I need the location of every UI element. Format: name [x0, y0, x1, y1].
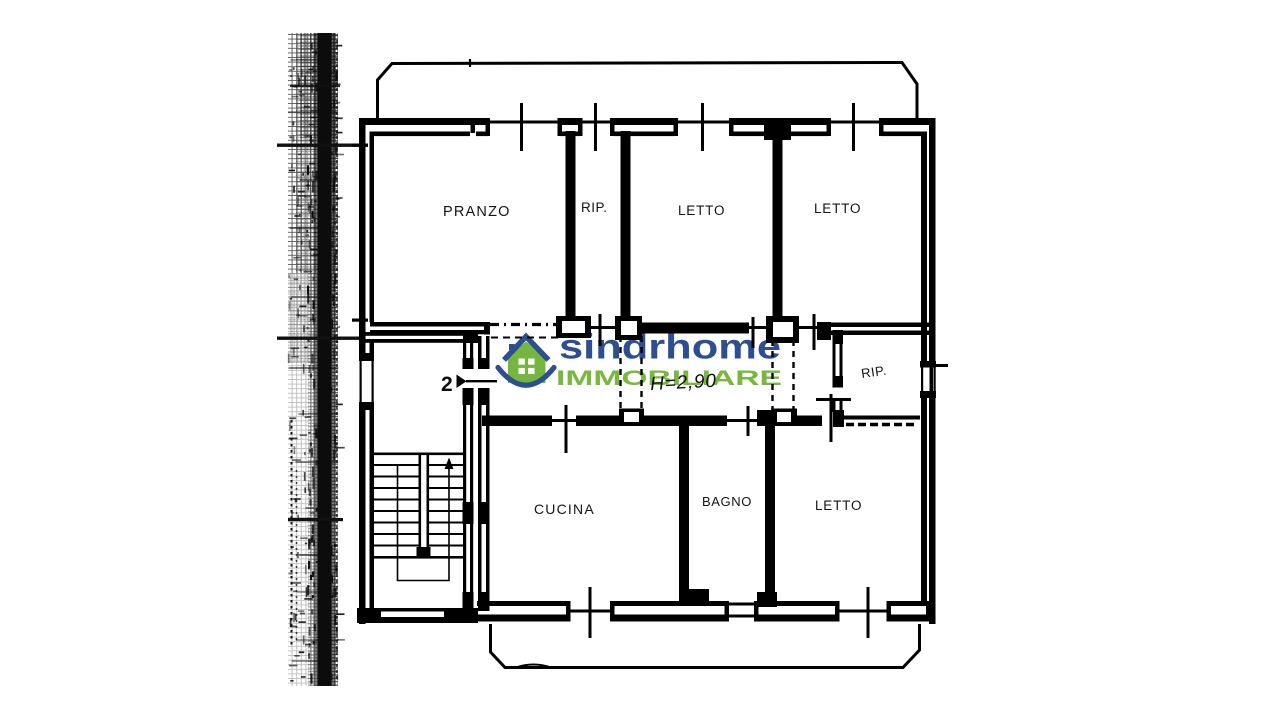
- svg-text:H=2,90: H=2,90: [650, 371, 718, 395]
- svg-text:2: 2: [441, 373, 453, 396]
- svg-text:LETTO: LETTO: [678, 203, 725, 218]
- svg-text:BAGNO: BAGNO: [702, 494, 752, 509]
- svg-text:LETTO: LETTO: [814, 201, 861, 216]
- svg-text:RIP.: RIP.: [581, 200, 608, 215]
- svg-text:CUCINA: CUCINA: [534, 501, 595, 517]
- svg-text:PRANZO: PRANZO: [443, 204, 511, 220]
- svg-text:LETTO: LETTO: [815, 498, 862, 513]
